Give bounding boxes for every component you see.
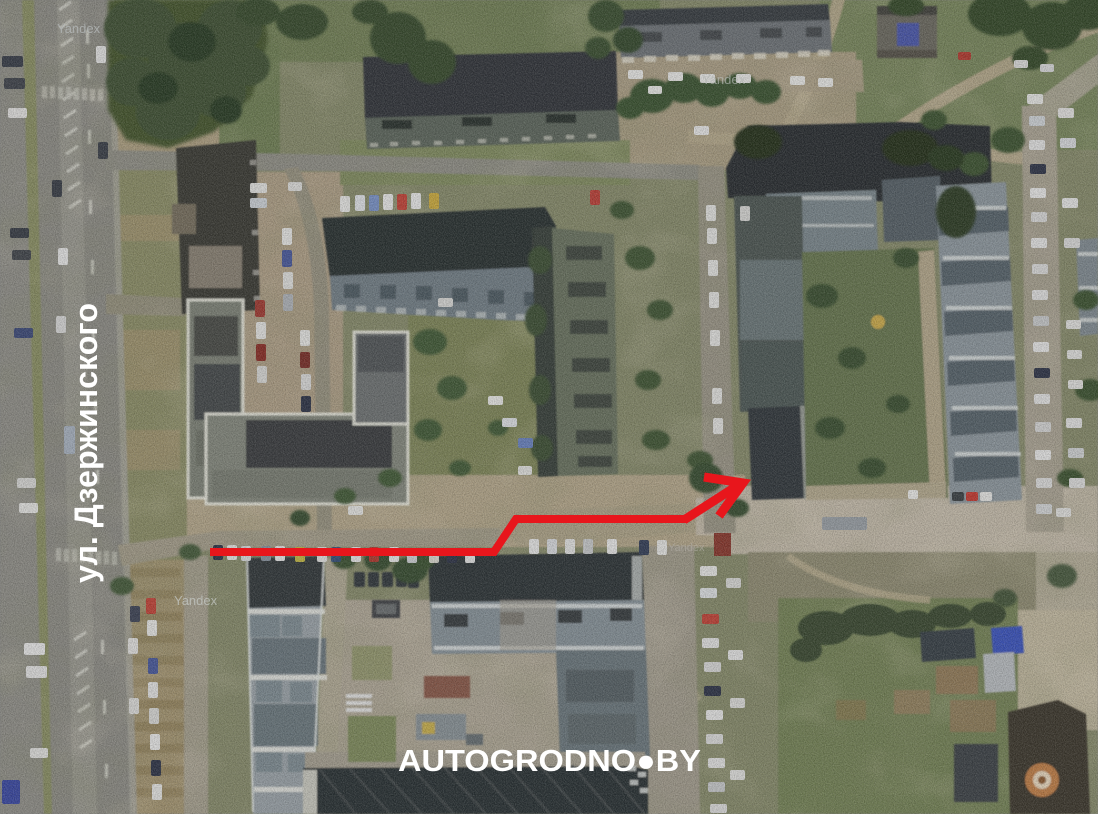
svg-text:ул. Дзержинского: ул. Дзержинского <box>68 303 104 583</box>
svg-text:Yandex: Yandex <box>57 21 101 36</box>
svg-text:Yandex: Yandex <box>702 72 746 87</box>
svg-text:AUTOGRODNO●BY: AUTOGRODNO●BY <box>398 743 701 778</box>
svg-text:Yandex: Yandex <box>668 542 705 554</box>
svg-text:Yandex: Yandex <box>174 593 218 608</box>
